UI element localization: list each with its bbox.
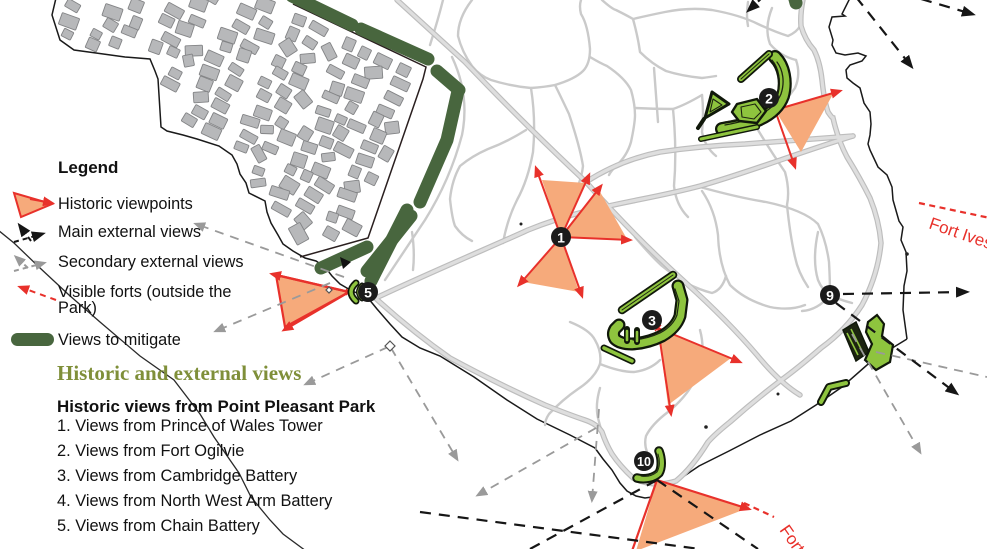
svg-text:Secondary external views: Secondary external views (58, 253, 244, 271)
svg-text:5: 5 (364, 285, 372, 301)
svg-text:Main external views: Main external views (58, 223, 201, 241)
svg-text:3: 3 (648, 313, 656, 329)
svg-text:Historic viewpoints: Historic viewpoints (58, 195, 193, 213)
svg-text:4. Views from North West Arm B: 4. Views from North West Arm Battery (57, 492, 333, 510)
svg-text:9: 9 (826, 288, 834, 304)
svg-text:Historic and external views: Historic and external views (57, 361, 301, 385)
svg-text:10: 10 (637, 455, 651, 469)
svg-text:1: 1 (557, 230, 565, 246)
svg-text:5. Views from Chain Battery: 5. Views from Chain Battery (57, 517, 261, 535)
svg-text:2: 2 (765, 91, 773, 107)
svg-text:2. Views from Fort Ogilvie: 2. Views from Fort Ogilvie (57, 442, 244, 460)
svg-text:Historic views from Point Plea: Historic views from Point Pleasant Park (57, 397, 376, 416)
svg-text:Views to mitigate: Views to mitigate (58, 331, 181, 349)
svg-text:Park): Park) (58, 299, 97, 317)
svg-text:3. Views from Cambridge Batter: 3. Views from Cambridge Battery (57, 467, 298, 485)
svg-text:Legend: Legend (58, 158, 118, 177)
svg-text:1. Views from Prince of Wales: 1. Views from Prince of Wales Tower (57, 417, 323, 435)
